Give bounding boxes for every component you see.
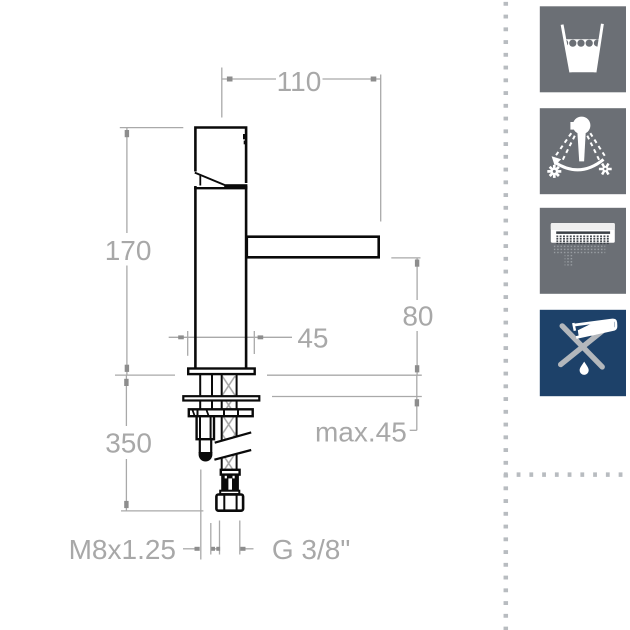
svg-text:45: 45 (297, 323, 328, 354)
svg-text:170: 170 (105, 235, 152, 266)
svg-text:G 3/8": G 3/8" (272, 534, 350, 565)
svg-text:110: 110 (277, 66, 322, 97)
svg-text:max.45: max.45 (315, 417, 407, 448)
svg-text:80: 80 (402, 301, 433, 332)
svg-text:M8x1.25: M8x1.25 (69, 534, 176, 565)
svg-text:350: 350 (105, 428, 152, 459)
